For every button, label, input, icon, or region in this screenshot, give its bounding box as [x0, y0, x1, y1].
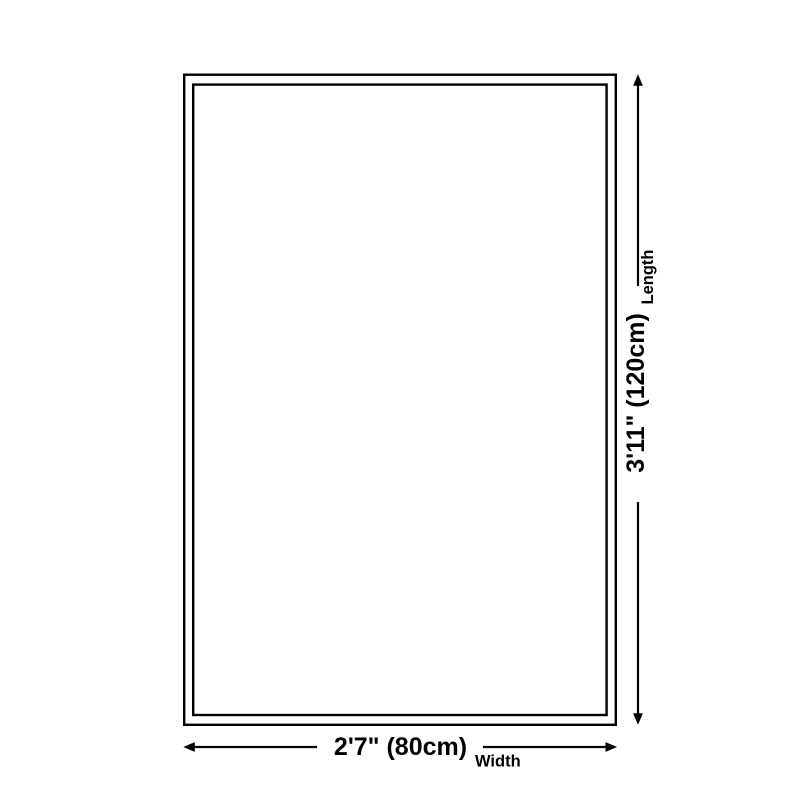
svg-text:Length: Length [639, 250, 657, 305]
svg-text:Width: Width [475, 752, 521, 770]
svg-text:3'11" (120cm): 3'11" (120cm) [622, 313, 650, 473]
svg-text:2'7" (80cm): 2'7" (80cm) [334, 733, 467, 761]
